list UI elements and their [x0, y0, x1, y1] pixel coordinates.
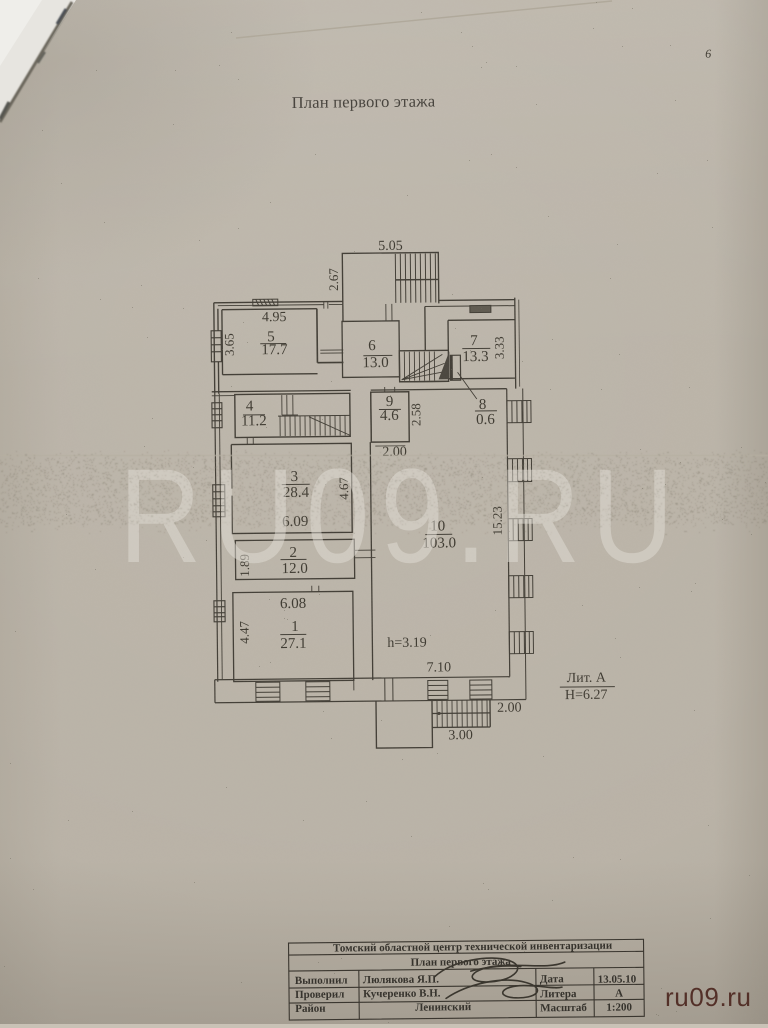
svg-text:RU09.RU: RU09.RU [119, 441, 685, 591]
svg-text:ru09.ru: ru09.ru [665, 982, 752, 1012]
